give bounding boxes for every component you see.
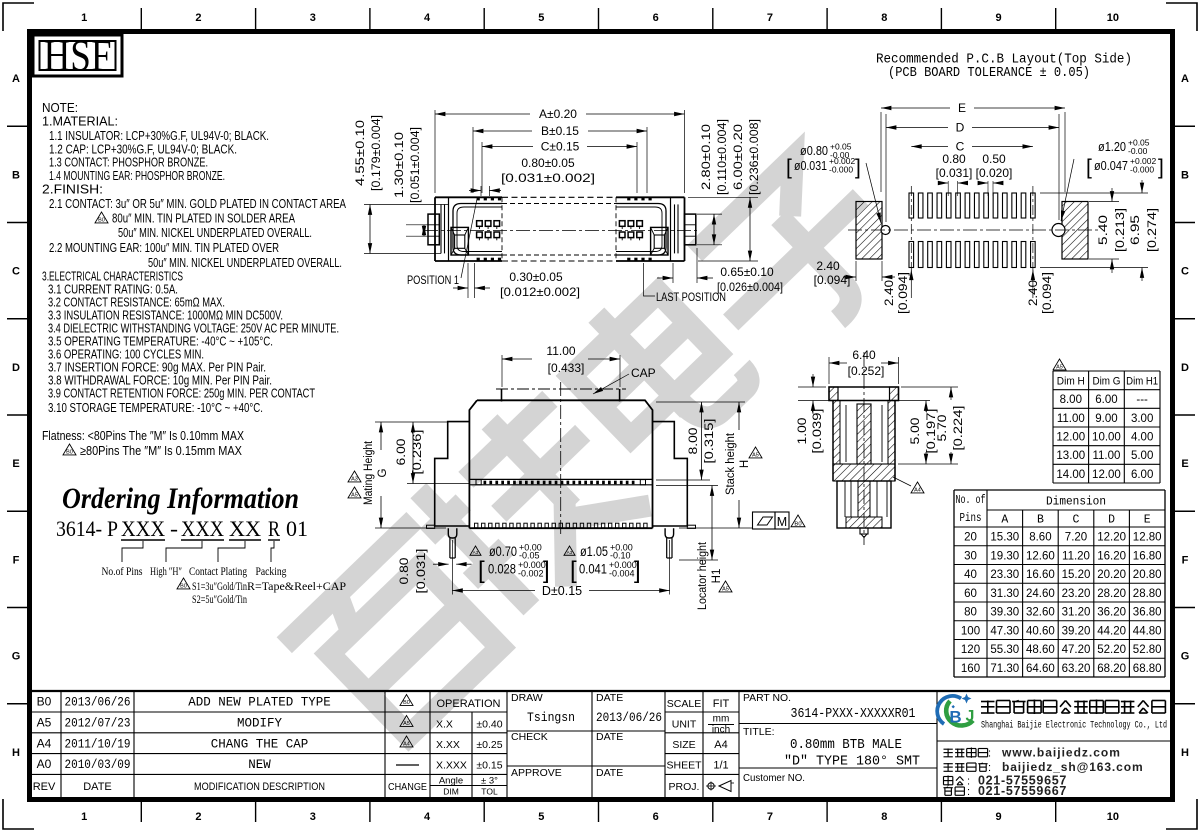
svg-text:9: 9 (995, 12, 1001, 24)
svg-text:2.40: 2.40 (1028, 280, 1040, 306)
svg-text:[0.031±0.002]: [0.031±0.002] (501, 171, 595, 185)
svg-text:24.60: 24.60 (1026, 588, 1055, 600)
svg-text:23.30: 23.30 (990, 569, 1019, 581)
svg-text:3.7 INSERTION FORCE: 90g MAX.: 3.7 INSERTION FORCE: 90g MAX. Per PIN Pa… (48, 361, 266, 375)
svg-text:HSF: HSF (44, 31, 112, 80)
svg-text:2011/10/19: 2011/10/19 (65, 737, 131, 751)
svg-text:REV: REV (33, 781, 56, 793)
svg-text:31.20: 31.20 (1062, 607, 1091, 619)
svg-text:± 3°: ± 3° (481, 776, 498, 787)
svg-text:0.30±0.05: 0.30±0.05 (509, 270, 563, 284)
svg-text:2.80±0.10: 2.80±0.10 (701, 124, 713, 190)
svg-text:C±0.15: C±0.15 (541, 140, 580, 154)
svg-text:]: ] (855, 156, 861, 179)
svg-text:52.80: 52.80 (1133, 644, 1162, 656)
svg-text:C: C (1181, 266, 1189, 278)
svg-text:H1: H1 (711, 569, 723, 584)
svg-text:-0.00: -0.00 (1128, 146, 1148, 156)
svg-text:NEW: NEW (248, 758, 271, 772)
svg-text:14.00: 14.00 (1056, 469, 1085, 481)
svg-text:1/1: 1/1 (713, 760, 728, 772)
svg-text:Dim H: Dim H (1057, 376, 1085, 388)
svg-text:7.20: 7.20 (1065, 532, 1087, 544)
svg-text:E: E (1144, 514, 1151, 527)
svg-text:TITLE:: TITLE: (743, 726, 775, 738)
svg-text:No. of: No. of (956, 494, 986, 507)
svg-text:Pins: Pins (960, 512, 982, 525)
svg-text:-0.004: -0.004 (609, 569, 635, 579)
svg-text:13.00: 13.00 (1056, 450, 1085, 462)
svg-text:40.60: 40.60 (1026, 625, 1055, 637)
svg-text:3.10 STORAGE TEMPERATURE: -10°: 3.10 STORAGE TEMPERATURE: -10°C ~ +40°C. (48, 401, 263, 415)
svg-text:160: 160 (961, 663, 980, 675)
svg-text:16.80: 16.80 (1133, 550, 1162, 562)
svg-text:E: E (1181, 458, 1188, 470)
svg-text:0.80: 0.80 (942, 152, 966, 166)
svg-text:PART NO.: PART NO. (743, 692, 791, 704)
svg-text:A5: A5 (403, 721, 410, 727)
svg-text:[: [ (478, 557, 485, 584)
svg-text:[0.224]: [0.224] (953, 406, 965, 451)
svg-text:Angle: Angle (439, 776, 463, 787)
svg-text:6: 6 (653, 12, 659, 24)
svg-text:3.6 OPERATING: 100 CYCLES MIN.: 3.6 OPERATING: 100 CYCLES MIN. (48, 348, 204, 362)
svg-text:6.00: 6.00 (396, 439, 408, 466)
svg-text:28.80: 28.80 (1133, 588, 1162, 600)
svg-text:1.2 CAP: LCP+30%G.F, UL94V-0;: 1.2 CAP: LCP+30%G.F, UL94V-0; BLACK. (49, 143, 237, 157)
svg-text:19.30: 19.30 (990, 550, 1019, 562)
svg-text:A±0.20: A±0.20 (539, 107, 577, 121)
svg-text::: : (988, 748, 991, 760)
svg-text:Shanghai Baijie Electronic Tec: Shanghai Baijie Electronic Technology Co… (981, 720, 1167, 732)
svg-text:4.55±0.10: 4.55±0.10 (355, 120, 367, 186)
svg-text:1.00: 1.00 (797, 418, 809, 445)
svg-text:3: 3 (310, 811, 316, 823)
svg-text:Contact Plating: Contact Plating (189, 566, 247, 578)
svg-text:12.60: 12.60 (1026, 550, 1055, 562)
svg-text:23.20: 23.20 (1062, 588, 1091, 600)
svg-text:12.00: 12.00 (1056, 432, 1085, 444)
svg-text:≥80Pins The ″M″ Is 0.15mm MAX: ≥80Pins The ″M″ Is 0.15mm MAX (80, 444, 243, 458)
svg-text:[0.236±0.008]: [0.236±0.008] (749, 119, 761, 195)
svg-text:A3: A3 (473, 550, 479, 555)
svg-text:(PCB BOARD TOLERANCE ± 0.05): (PCB BOARD TOLERANCE ± 0.05) (888, 66, 1090, 81)
svg-text:80: 80 (964, 607, 977, 619)
svg-text:3.2 CONTACT RESISTANCE: 65mΩ M: 3.2 CONTACT RESISTANCE: 65mΩ MAX. (48, 296, 225, 310)
svg-text:A5: A5 (37, 716, 52, 730)
svg-text:68.20: 68.20 (1097, 663, 1126, 675)
svg-text:Tsingsn: Tsingsn (527, 710, 575, 725)
svg-text:39.30: 39.30 (990, 607, 1019, 619)
svg-text:44.80: 44.80 (1133, 625, 1162, 637)
svg-text:A0: A0 (37, 757, 52, 771)
svg-text:D: D (1108, 514, 1115, 527)
svg-text:5.70: 5.70 (937, 415, 949, 442)
svg-text:50u″ MIN. NICKEL UNDERPLATED O: 50u″ MIN. NICKEL UNDERPLATED OVERALL. (148, 256, 342, 270)
svg-text:[0.026±0.004]: [0.026±0.004] (717, 280, 783, 294)
svg-text:A3: A3 (567, 550, 573, 555)
svg-text:7: 7 (767, 12, 773, 24)
svg-text:H: H (1181, 747, 1189, 759)
svg-text:47.30: 47.30 (990, 625, 1019, 637)
svg-text::: : (967, 786, 970, 798)
svg-text:2012/07/23: 2012/07/23 (65, 717, 131, 731)
svg-text:39.20: 39.20 (1062, 625, 1091, 637)
svg-text:B0: B0 (794, 522, 802, 528)
svg-text:5.40: 5.40 (1098, 215, 1110, 245)
svg-text:0.65±0.10: 0.65±0.10 (720, 265, 774, 279)
svg-text:[0.094]: [0.094] (814, 273, 851, 287)
svg-text:X.XXX: X.XXX (436, 760, 467, 772)
svg-text:UNIT: UNIT (672, 719, 697, 731)
svg-text:A5: A5 (752, 453, 759, 459)
svg-text:3.9 CONTACT RETENTION FORCE: 2: 3.9 CONTACT RETENTION FORCE: 250g MIN. P… (48, 387, 315, 401)
svg-text:[: [ (570, 557, 577, 584)
svg-text:3.1 CURRENT RATING: 0.5A.: 3.1 CURRENT RATING: 0.5A. (48, 283, 178, 297)
svg-text:[: [ (786, 156, 792, 179)
svg-text:DIM: DIM (443, 787, 459, 797)
svg-text:36.20: 36.20 (1097, 607, 1126, 619)
svg-text:[0.094]: [0.094] (898, 272, 910, 314)
svg-text:A4: A4 (37, 736, 52, 750)
svg-text:-0.05: -0.05 (519, 551, 540, 561)
svg-text:]: ] (634, 557, 641, 584)
svg-text:A4: A4 (403, 742, 410, 748)
svg-text:Flatness: <80Pins The ″M″ Is 0: Flatness: <80Pins The ″M″ Is 0.10mm MAX (42, 429, 245, 443)
svg-text:2.1 CONTACT: 3u″ OR 5u″ MIN. G: 2.1 CONTACT: 3u″ OR 5u″ MIN. GOLD PLATED… (49, 197, 347, 211)
svg-text:High ″H″: High ″H″ (150, 566, 182, 578)
svg-text:2: 2 (195, 811, 201, 823)
svg-text:2.40: 2.40 (816, 259, 840, 273)
svg-text:20: 20 (964, 532, 977, 544)
svg-text:B0: B0 (66, 450, 73, 456)
svg-text:2013/06/26: 2013/06/26 (65, 696, 131, 710)
svg-text:120: 120 (961, 644, 980, 656)
svg-text:D: D (1181, 362, 1189, 374)
svg-text:B0: B0 (37, 695, 52, 709)
svg-text:H: H (739, 460, 751, 468)
svg-text:6.00: 6.00 (1131, 469, 1153, 481)
svg-text:8: 8 (881, 811, 887, 823)
svg-text:12.20: 12.20 (1097, 532, 1126, 544)
svg-text:[: [ (1086, 156, 1092, 179)
svg-text:[0.213]: [0.213] (1115, 208, 1127, 252)
svg-text:NOTE:: NOTE: (42, 101, 78, 115)
svg-text:0.80mm BTB MALE: 0.80mm BTB MALE (790, 738, 902, 753)
svg-text:DATE: DATE (596, 692, 623, 704)
svg-text:[0.012±0.002]: [0.012±0.002] (500, 285, 580, 299)
svg-text:3.5 OPERATING TEMPERATURE: -40: 3.5 OPERATING TEMPERATURE: -40°C ~ +105°… (48, 335, 273, 349)
svg-text:31.30: 31.30 (990, 588, 1019, 600)
svg-text:B: B (1037, 514, 1044, 527)
svg-text:11.00: 11.00 (546, 344, 575, 358)
svg-text:3.3 INSULATION RESISTANCE: 100: 3.3 INSULATION RESISTANCE: 1000MΩ MIN DC… (48, 309, 283, 323)
svg-text:44.20: 44.20 (1097, 625, 1126, 637)
svg-text:Stack height: Stack height (725, 432, 737, 495)
svg-text:100: 100 (961, 625, 980, 637)
svg-text:[0.031]: [0.031] (416, 549, 428, 594)
svg-text:B±0.15: B±0.15 (541, 124, 579, 138)
svg-text:48.60: 48.60 (1026, 644, 1055, 656)
svg-text:SHEET: SHEET (666, 760, 702, 772)
svg-text:[0.051±0.004]: [0.051±0.004] (410, 127, 422, 203)
svg-text:8.60: 8.60 (1029, 532, 1051, 544)
svg-text:16.60: 16.60 (1026, 569, 1055, 581)
svg-text:Dim G: Dim G (1092, 376, 1120, 388)
svg-text:-0.000: -0.000 (829, 165, 853, 175)
svg-text:4: 4 (424, 811, 431, 823)
svg-text:D: D (956, 121, 965, 135)
svg-text:F: F (1182, 554, 1189, 566)
svg-text:10: 10 (1107, 811, 1119, 823)
svg-text:9.00: 9.00 (1095, 413, 1117, 425)
svg-text:DRAW: DRAW (511, 692, 543, 704)
svg-text:28.20: 28.20 (1097, 588, 1126, 600)
svg-text:6.00: 6.00 (1095, 394, 1117, 406)
svg-text:60: 60 (964, 588, 977, 600)
svg-text:MODIFICATION DESCRIPTION: MODIFICATION DESCRIPTION (194, 781, 325, 793)
svg-text:8.00: 8.00 (1060, 394, 1082, 406)
svg-text:2010/03/09: 2010/03/09 (65, 758, 131, 772)
svg-text:]: ] (1158, 156, 1164, 179)
svg-text:ø0.70: ø0.70 (489, 544, 517, 559)
svg-text:±0.40: ±0.40 (476, 719, 502, 731)
svg-text:G: G (377, 468, 389, 477)
svg-text:021-57559667: 021-57559667 (978, 784, 1067, 798)
svg-text:±0.25: ±0.25 (476, 739, 502, 751)
svg-text:5.00: 5.00 (1131, 450, 1153, 462)
svg-text:[0.094]: [0.094] (1042, 272, 1054, 314)
svg-text:POSITION 1: POSITION 1 (407, 273, 459, 287)
svg-text:DATE: DATE (596, 731, 623, 743)
svg-text:APPROVE: APPROVE (511, 767, 562, 779)
svg-text:---: --- (1136, 394, 1148, 406)
svg-text:5: 5 (538, 811, 544, 823)
svg-text:ø0.031: ø0.031 (794, 159, 827, 173)
svg-text:6: 6 (653, 811, 659, 823)
svg-text:20.20: 20.20 (1097, 569, 1126, 581)
svg-text:Packing: Packing (256, 566, 287, 578)
svg-text:Locator height: Locator height (697, 541, 709, 610)
svg-text:2013/06/26: 2013/06/26 (596, 710, 662, 725)
svg-text:G: G (1181, 651, 1190, 663)
svg-text:mm: mm (713, 714, 730, 725)
svg-text:[0.179±0.004]: [0.179±0.004] (371, 115, 383, 191)
svg-text:CAP: CAP (631, 366, 656, 380)
svg-text:64.60: 64.60 (1026, 663, 1055, 675)
svg-text:MODIFY: MODIFY (237, 717, 283, 731)
svg-text:8.00: 8.00 (688, 428, 700, 455)
svg-text::: : (988, 762, 991, 774)
svg-text:1.MATERIAL:: 1.MATERIAL: (42, 115, 118, 129)
svg-text:3.8 WITHDRAWAL FORCE: 10g MIN.: 3.8 WITHDRAWAL FORCE: 10g MIN. Per PIN P… (48, 374, 272, 388)
svg-text:No.of Pins: No.of Pins (102, 566, 143, 578)
svg-text:G: G (12, 651, 21, 663)
svg-text:DATE: DATE (596, 767, 623, 779)
svg-text:Mating Height: Mating Height (363, 440, 375, 505)
svg-text:LAST POSITION: LAST POSITION (656, 290, 726, 304)
svg-text:C: C (12, 266, 20, 278)
svg-text:3.ELECTRICAL CHARACTERISTICS: 3.ELECTRICAL CHARACTERISTICS (42, 270, 183, 284)
svg-text:CHANGE: CHANGE (388, 781, 427, 793)
svg-text:Dim H1: Dim H1 (1126, 376, 1158, 388)
svg-text:5: 5 (538, 12, 544, 24)
svg-text:B0: B0 (180, 584, 187, 590)
svg-text:16.20: 16.20 (1097, 550, 1126, 562)
svg-text:7: 7 (767, 811, 773, 823)
svg-text:15.30: 15.30 (990, 532, 1019, 544)
svg-text:J: J (966, 708, 975, 725)
svg-text:ø1.20: ø1.20 (1098, 140, 1126, 154)
svg-text:TOL: TOL (481, 787, 498, 797)
svg-text:C: C (1073, 514, 1080, 527)
svg-text:-0.000: -0.000 (1130, 165, 1154, 175)
svg-text:X.X: X.X (436, 719, 453, 731)
svg-text:47.20: 47.20 (1062, 644, 1091, 656)
svg-text:R=Tape&Reel+CAP: R=Tape&Reel+CAP (247, 581, 346, 593)
svg-text:OPERATION: OPERATION (437, 698, 501, 710)
svg-text:1.4 MOUNTING EAR: PHOSPHOR BRO: 1.4 MOUNTING EAR: PHOSPHOR BRONZE. (49, 169, 225, 183)
svg-text:PROJ.: PROJ. (669, 781, 700, 793)
svg-text:[0.031]: [0.031] (936, 166, 973, 180)
svg-text:baijiedz_sh@163.com: baijiedz_sh@163.com (1002, 760, 1144, 774)
svg-text:[0.020]: [0.020] (976, 166, 1013, 180)
svg-text:F: F (13, 554, 20, 566)
svg-text:M: M (777, 515, 787, 529)
svg-text:A: A (1001, 514, 1008, 527)
svg-text:B0: B0 (403, 700, 410, 706)
svg-text:SIZE: SIZE (672, 739, 695, 751)
svg-text:A5: A5 (1056, 365, 1063, 371)
svg-text:B: B (1181, 169, 1189, 181)
svg-text:0.80: 0.80 (399, 558, 411, 585)
svg-text:71.30: 71.30 (990, 663, 1019, 675)
svg-text:A5: A5 (351, 493, 358, 499)
svg-text:36.80: 36.80 (1133, 607, 1162, 619)
svg-text:E: E (958, 101, 966, 115)
svg-text:3.00: 3.00 (1131, 413, 1153, 425)
svg-text:S1=3u″Gold/Tin: S1=3u″Gold/Tin (192, 581, 247, 593)
svg-text:55.30: 55.30 (990, 644, 1019, 656)
svg-text:10.00: 10.00 (1092, 432, 1121, 444)
svg-text:20.80: 20.80 (1133, 569, 1162, 581)
svg-text:6.40: 6.40 (852, 348, 876, 362)
svg-text:5.00: 5.00 (910, 418, 922, 445)
svg-text:2.2 MOUNTING EAR: 100u″ MIN. T: 2.2 MOUNTING EAR: 100u″ MIN. TIN PLATED … (49, 241, 279, 255)
svg-text:2: 2 (195, 12, 201, 24)
svg-text:2.40: 2.40 (884, 280, 896, 306)
svg-text:H: H (12, 747, 20, 759)
svg-text:3614- PXXX-XXXXXR01: 3614- PXXX-XXXXXR01 (56, 516, 308, 541)
svg-text:[0.252]: [0.252] (848, 364, 885, 378)
svg-text:2.FINISH:: 2.FINISH: (42, 183, 103, 197)
svg-text:68.80: 68.80 (1133, 663, 1162, 675)
svg-text:±0.15: ±0.15 (476, 760, 502, 772)
svg-text:Customer NO.: Customer NO. (743, 772, 805, 784)
svg-text:B0: B0 (98, 218, 105, 224)
svg-text:12.80: 12.80 (1133, 532, 1162, 544)
svg-text:80u″ MIN. TIN PLATED IN SOLDER: 80u″ MIN. TIN PLATED IN SOLDER AREA (112, 212, 296, 226)
svg-text:A3: A3 (351, 477, 358, 483)
svg-text:30: 30 (964, 550, 977, 562)
svg-text:X.XX: X.XX (436, 739, 460, 751)
svg-text:52.20: 52.20 (1097, 644, 1126, 656)
svg-text:A5: A5 (722, 587, 729, 593)
svg-text:11.00: 11.00 (1092, 450, 1120, 462)
svg-text:B: B (12, 169, 20, 181)
svg-text:3.4 DIELECTRIC WITHSTANDING VO: 3.4 DIELECTRIC WITHSTANDING VOLTAGE: 250… (48, 322, 339, 336)
svg-text:A4: A4 (714, 739, 727, 751)
svg-text:SCALE: SCALE (667, 698, 701, 710)
svg-text:D±0.15: D±0.15 (542, 584, 582, 598)
svg-text:-0.10: -0.10 (610, 551, 631, 561)
svg-text:[0.315]: [0.315] (704, 419, 716, 464)
svg-text:6.95: 6.95 (1130, 215, 1142, 245)
svg-text:32.60: 32.60 (1026, 607, 1055, 619)
svg-text:]: ] (543, 557, 550, 584)
svg-text:1.1 INSULATOR: LCP+30%G.F, UL9: 1.1 INSULATOR: LCP+30%G.F, UL94V-0; BLAC… (49, 129, 269, 143)
svg-text:1.3 CONTACT: PHOSPHOR BRONZE.: 1.3 CONTACT: PHOSPHOR BRONZE. (49, 156, 208, 170)
svg-text:DATE: DATE (83, 781, 112, 793)
svg-text:D: D (12, 362, 20, 374)
svg-text:CHANG THE CAP: CHANG THE CAP (211, 737, 309, 751)
svg-text:11.20: 11.20 (1062, 550, 1090, 562)
svg-text:11.00: 11.00 (1057, 413, 1085, 425)
svg-text:ø0.047: ø0.047 (1094, 159, 1128, 173)
svg-text:inch: inch (712, 725, 730, 736)
svg-text:12.00: 12.00 (1092, 469, 1121, 481)
svg-text:Dimension: Dimension (1046, 496, 1106, 509)
svg-text:[0.039]: [0.039] (812, 409, 824, 454)
svg-text:CHECK: CHECK (511, 731, 548, 743)
svg-text:3: 3 (310, 12, 316, 24)
svg-text:0.028: 0.028 (488, 562, 516, 577)
svg-text:ADD NEW PLATED TYPE: ADD NEW PLATED TYPE (188, 696, 331, 710)
svg-text:S2=5u″Gold/Tin: S2=5u″Gold/Tin (192, 594, 247, 606)
svg-text:A: A (1181, 73, 1189, 85)
svg-text:3614-PXXX-XXXXXR01: 3614-PXXX-XXXXXR01 (791, 707, 916, 722)
svg-text:-0.002: -0.002 (518, 569, 544, 579)
svg-text:ø0.80: ø0.80 (800, 144, 828, 158)
svg-text:4.00: 4.00 (1131, 432, 1153, 444)
svg-text:E: E (12, 458, 19, 470)
svg-text:1: 1 (81, 811, 87, 823)
svg-text:[0.274]: [0.274] (1147, 208, 1159, 252)
svg-text:0.80±0.05: 0.80±0.05 (521, 156, 575, 170)
svg-text:www.baijiedz.com: www.baijiedz.com (1001, 746, 1121, 760)
svg-text:FIT: FIT (713, 698, 730, 710)
svg-text:1: 1 (81, 12, 87, 24)
svg-text:15.20: 15.20 (1062, 569, 1091, 581)
svg-text:[0.433]: [0.433] (548, 361, 585, 375)
svg-text:50u″ MIN. NICKEL UNDERPLATED O: 50u″ MIN. NICKEL UNDERPLATED OVERALL. (118, 226, 312, 240)
svg-text:Ordering Information: Ordering Information (62, 482, 299, 515)
svg-text:4: 4 (424, 12, 431, 24)
svg-text:63.20: 63.20 (1062, 663, 1091, 675)
svg-text:ø1.05: ø1.05 (580, 544, 608, 559)
svg-text:8: 8 (881, 12, 887, 24)
svg-text:[0.236]: [0.236] (412, 430, 424, 475)
svg-text:9: 9 (995, 811, 1001, 823)
svg-text:40: 40 (964, 569, 977, 581)
svg-text:[0.110±0.004]: [0.110±0.004] (717, 119, 729, 195)
svg-text:B: B (949, 708, 961, 727)
svg-text:″D″ TYPE 180° SMT: ″D″ TYPE 180° SMT (784, 755, 920, 770)
svg-text:0.50: 0.50 (982, 152, 1006, 166)
svg-text:A4: A4 (914, 488, 921, 494)
svg-text:6.00±0.20: 6.00±0.20 (733, 124, 745, 190)
svg-text:A: A (12, 73, 20, 85)
